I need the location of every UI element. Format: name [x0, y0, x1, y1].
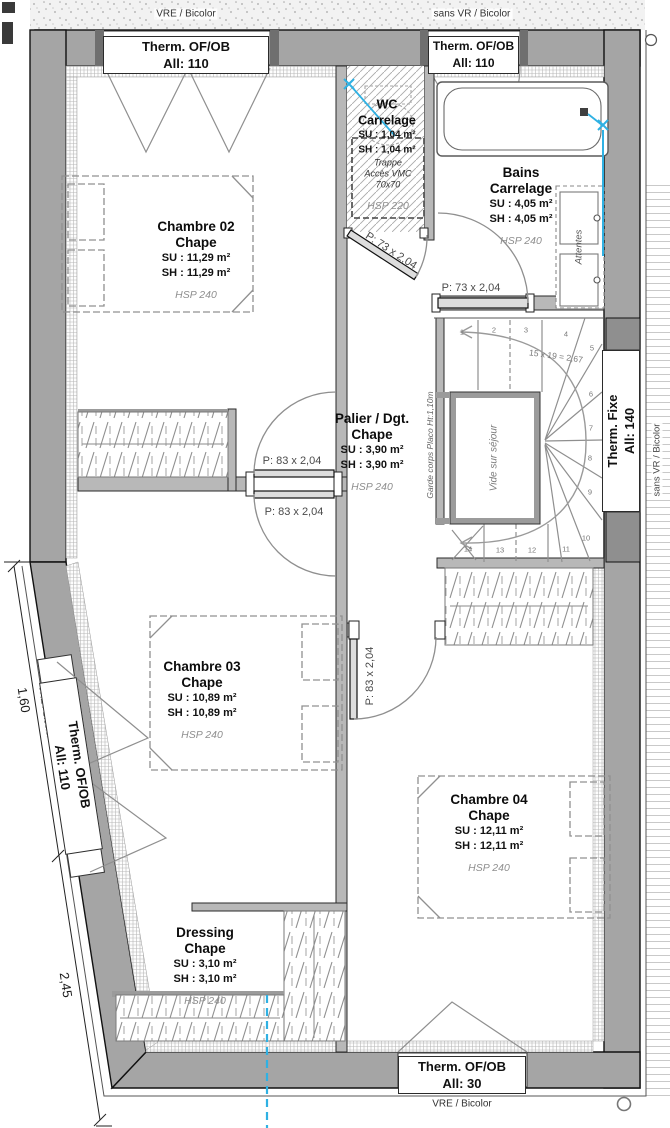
bath-attentes-label: Attentes — [574, 230, 585, 265]
window-sill: All: 110 — [163, 55, 209, 72]
room-finish: Chape — [351, 427, 392, 443]
room-su: SU : 1,04 m² — [358, 129, 415, 144]
stair-guard-label: Garde corps Placo Ht:1,10m — [425, 391, 435, 498]
room-finish: Chape — [468, 808, 509, 824]
room-name: Chambre 03 — [163, 659, 240, 675]
door-label-chambre04: P: 83 x 2,04 — [364, 647, 376, 706]
stair-step-number: 4 — [564, 330, 568, 339]
roof-annotation-top-right: sans VR / Bicolor — [432, 9, 513, 20]
room-name: Chambre 04 — [450, 792, 527, 808]
room-dressing: Dressing Chape SU : 3,10 m² SH : 3,10 m²… — [174, 925, 237, 1007]
stair-step-number: 2 — [492, 326, 496, 335]
bathtub — [437, 82, 608, 156]
room-hsp: HSP 240 — [175, 289, 217, 301]
stair-step-number: 8 — [588, 454, 592, 463]
window-type: Therm. OF/OB — [433, 38, 514, 55]
room-chambre03: Chambre 03 Chape SU : 10,89 m² SH : 10,8… — [163, 659, 240, 741]
window-sill: All: 30 — [442, 1075, 481, 1092]
room-hsp: HSP 240 — [184, 995, 226, 1007]
room-hsp: HSP 240 — [181, 729, 223, 741]
roof-annotation-top-left: VRE / Bicolor — [154, 9, 217, 20]
room-su: SU : 12,11 m² — [455, 824, 523, 839]
room-sh: SH : 3,10 m² — [174, 972, 237, 987]
gutter-bottom-right — [618, 1098, 631, 1111]
gutter-top-right — [646, 35, 657, 46]
roof-annotation-right: sans VR / Bicolor — [652, 422, 663, 499]
room-wc: WC Carrelage SU : 1,04 m² SH : 1,04 m² — [358, 97, 416, 158]
room-sh: SH : 3,90 m² — [341, 458, 404, 473]
room-su: SU : 4,05 m² — [490, 197, 553, 212]
stair-step-number: 3 — [524, 326, 528, 335]
stair-step-number: 5 — [590, 344, 594, 353]
room-finish: Chape — [175, 235, 216, 251]
trap-line3: 70x70 — [376, 180, 401, 191]
stair-step-number: 6 — [589, 390, 593, 399]
room-name: WC — [377, 97, 398, 113]
room-finish: Carrelage — [358, 113, 416, 129]
stair-step-number: 11 — [562, 545, 570, 554]
room-name: Chambre 02 — [157, 219, 234, 235]
stair-step-number: 9 — [588, 488, 592, 497]
window-label-right: Therm. Fixe All: 140 — [602, 350, 640, 512]
room-su: SU : 11,29 m² — [162, 251, 230, 266]
window-label-bottom: Therm. OF/OB All: 30 — [398, 1056, 526, 1094]
room-name: Dressing — [176, 925, 234, 941]
room-hsp: HSP 240 — [351, 481, 393, 493]
window-sill: All: 110 — [452, 55, 494, 72]
room-name: Bains — [503, 165, 540, 181]
stair-step-number: 1 — [460, 328, 464, 337]
room-name: Palier / Dgt. — [335, 411, 409, 427]
right-siding-band — [646, 185, 670, 1096]
window-type: Therm. OF/OB — [142, 38, 230, 55]
room-finish: Chape — [181, 675, 222, 691]
room-sh: SH : 10,89 m² — [167, 706, 236, 721]
stair-step-number: 7 — [589, 424, 593, 433]
stair-step-number: 12 — [528, 546, 536, 555]
room-sh: SH : 4,05 m² — [490, 212, 553, 227]
roof-annotation-bottom: VRE / Bicolor — [430, 1099, 493, 1110]
room-sh: SH : 11,29 m² — [162, 266, 230, 281]
trap-line2: Accès VMC — [364, 169, 411, 180]
door-label-chambre02: P: 83 x 2,04 — [263, 455, 322, 467]
room-sh: SH : 12,11 m² — [455, 839, 523, 854]
stair-step-number: 13 — [496, 546, 504, 555]
door-label-chambre03: P: 83 x 2,04 — [265, 506, 324, 518]
room-wc-hsp: HSP 220 — [367, 200, 409, 212]
door-label-bains: P: 73 x 2,04 — [442, 282, 501, 294]
stair-void-label: Vide sur séjour — [489, 425, 500, 492]
room-palier: Palier / Dgt. Chape SU : 3,90 m² SH : 3,… — [335, 411, 409, 493]
room-finish: Carrelage — [490, 181, 552, 197]
roof-stipple-band — [30, 0, 645, 30]
room-chambre04: Chambre 04 Chape SU : 12,11 m² SH : 12,1… — [450, 792, 527, 874]
stair-step-number: 14 — [464, 545, 472, 554]
vmc-trap-label: Trappe Accès VMC 70x70 — [364, 158, 411, 191]
window-label-top-left: Therm. OF/OB All: 110 — [103, 36, 269, 74]
stair-step-number: 10 — [582, 534, 590, 543]
window-label-top-right: Therm. OF/OB All: 110 — [428, 36, 519, 74]
room-hsp: HSP 240 — [468, 862, 510, 874]
room-bains: Bains Carrelage SU : 4,05 m² SH : 4,05 m… — [490, 165, 553, 247]
window-sill: All: 140 — [621, 408, 638, 454]
trap-line1: Trappe — [374, 158, 402, 169]
room-su: SU : 3,10 m² — [174, 957, 237, 972]
room-su: SU : 3,90 m² — [341, 443, 404, 458]
room-finish: Chape — [184, 941, 225, 957]
floorplan-linework — [0, 0, 670, 1128]
window-type: Therm. OF/OB — [418, 1058, 506, 1075]
room-sh: SH : 1,04 m² — [358, 143, 415, 158]
room-su: SU : 10,89 m² — [167, 691, 236, 706]
room-chambre02: Chambre 02 Chape SU : 11,29 m² SH : 11,2… — [157, 219, 234, 301]
window-type: Therm. Fixe — [604, 395, 621, 468]
room-hsp: HSP 240 — [500, 235, 542, 247]
floor-plan: VRE / Bicolor sans VR / Bicolor VRE / Bi… — [0, 0, 670, 1128]
